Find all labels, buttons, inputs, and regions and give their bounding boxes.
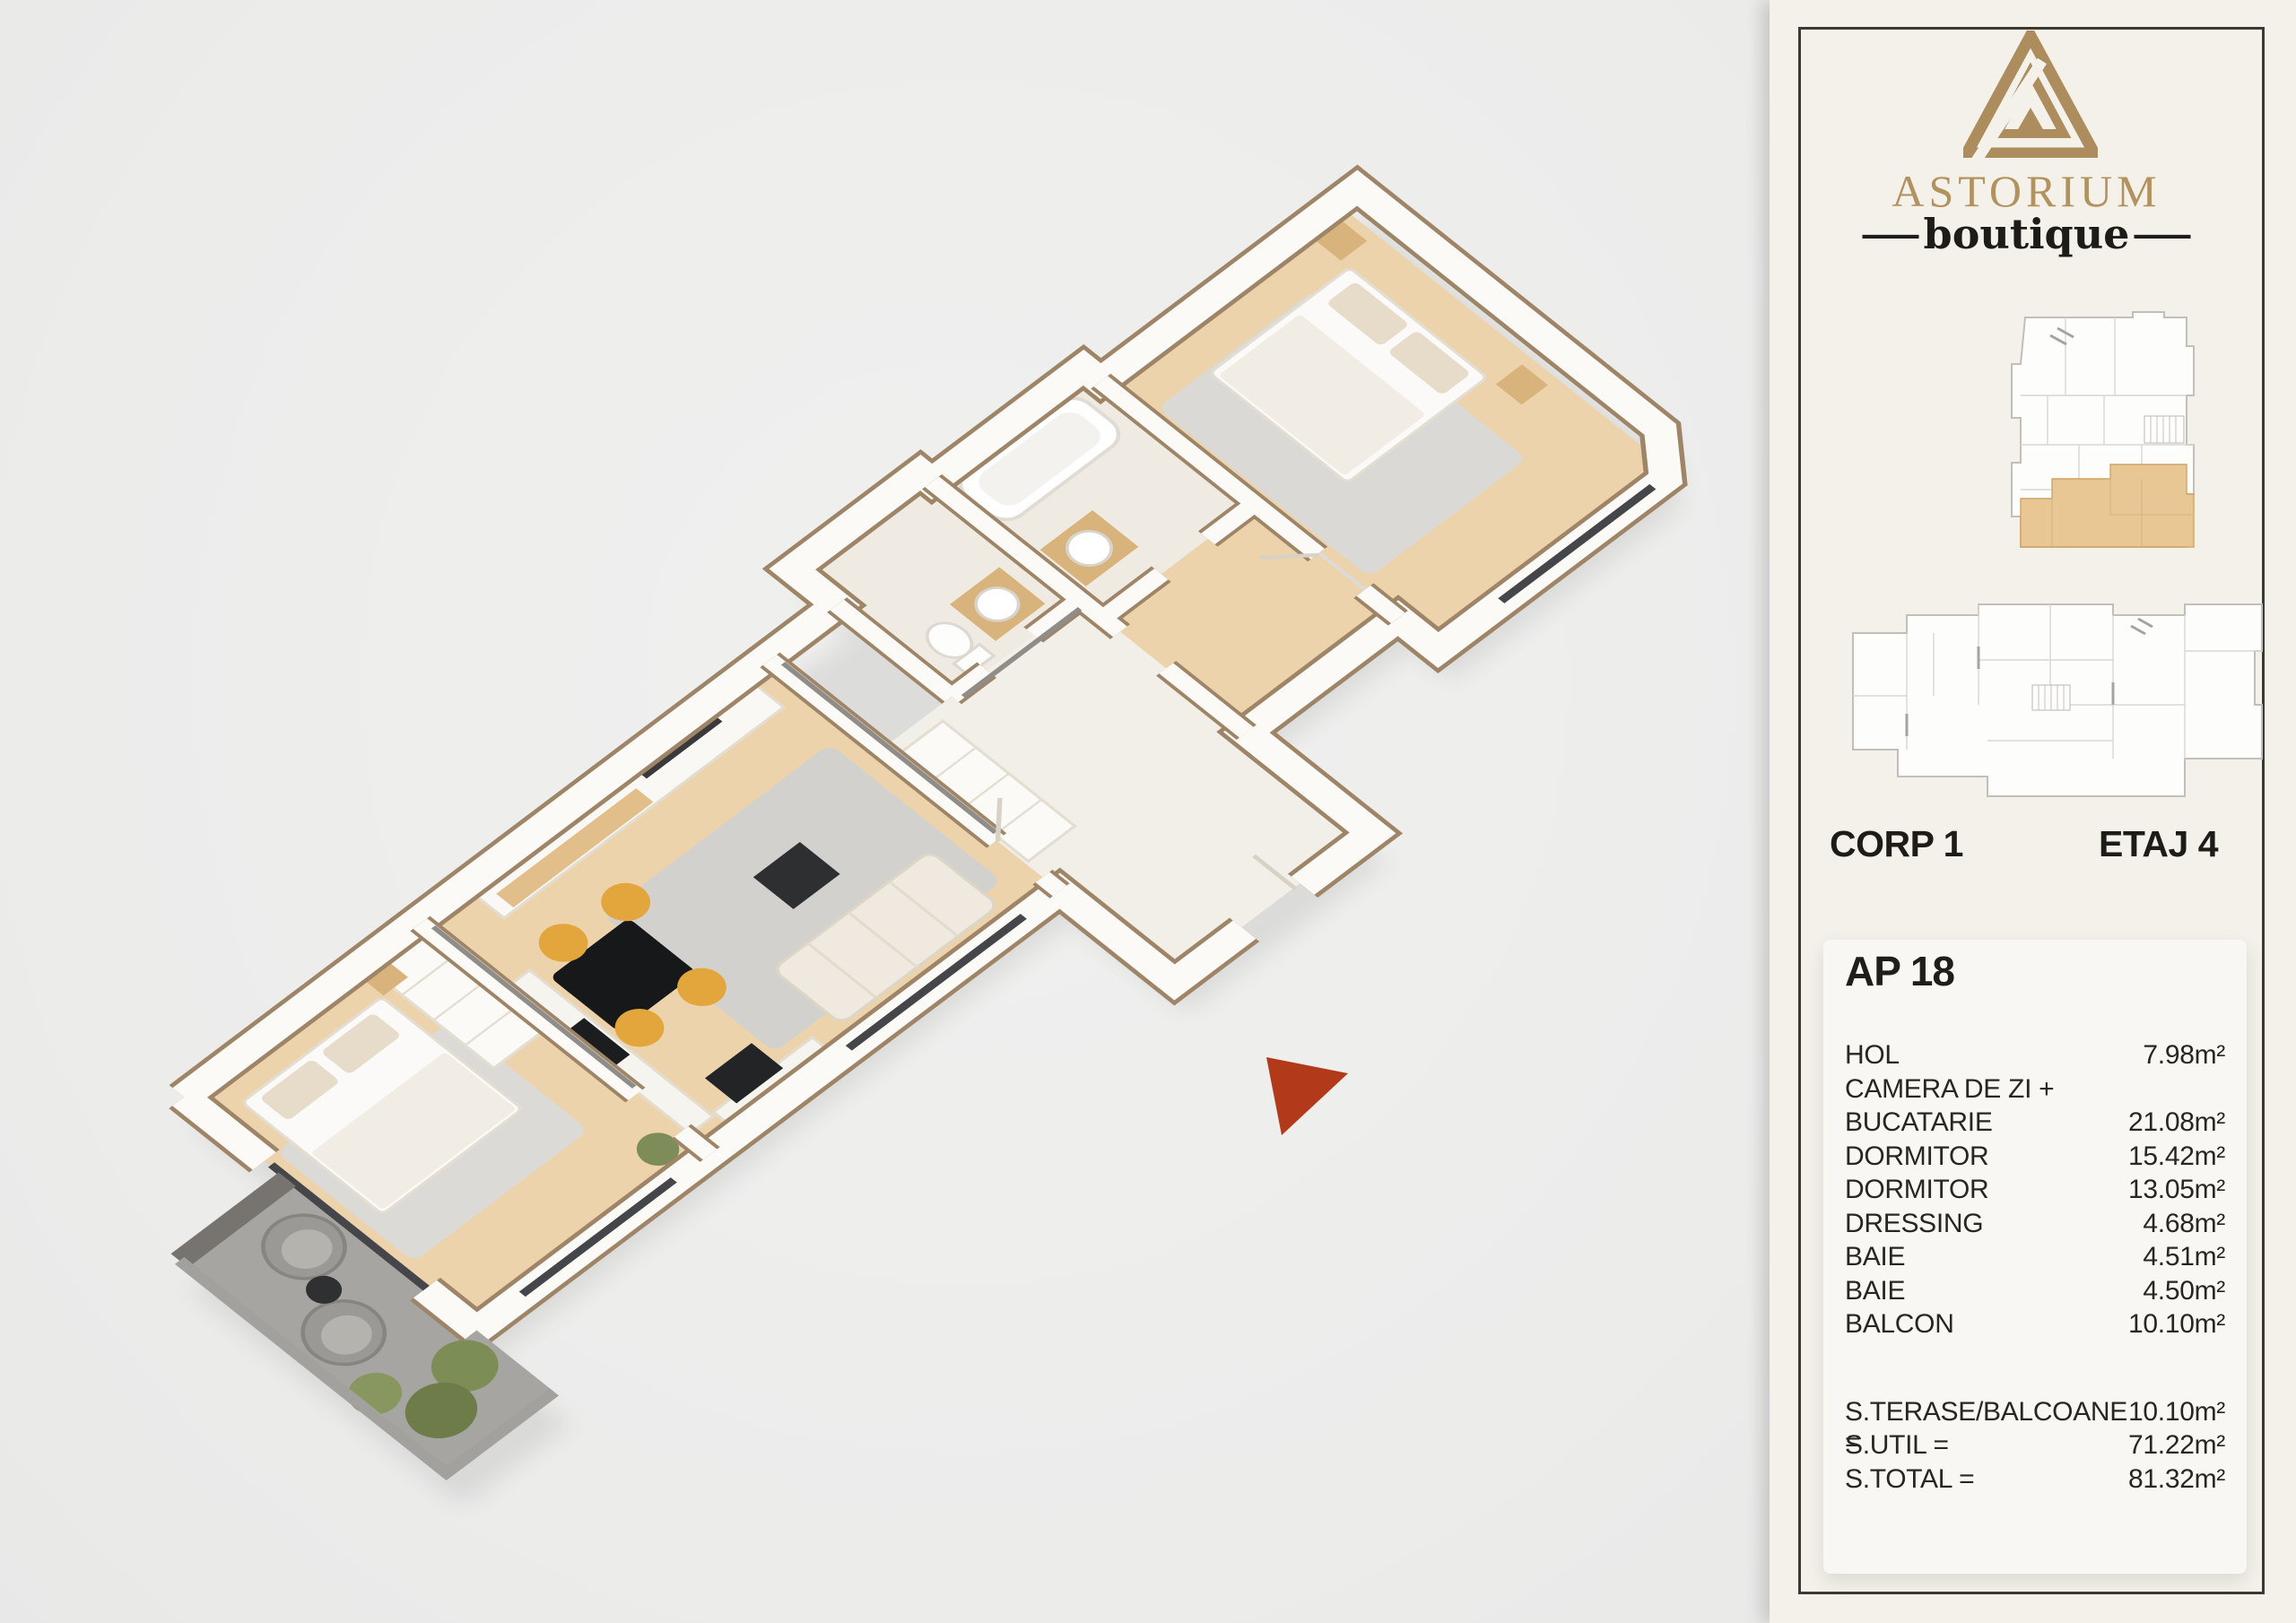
- room-label: DRESSING: [1845, 1209, 1983, 1239]
- table-row: DORMITOR 13.05m²: [1845, 1175, 2225, 1209]
- table-row: S.TOTAL = 81.32m²: [1845, 1464, 2225, 1498]
- tagline-word: boutique: [1924, 213, 2130, 255]
- floorplan-render: [0, 0, 1785, 1623]
- table-row: BAIE 4.50m²: [1845, 1276, 2225, 1310]
- room-label: BAIE: [1845, 1242, 1905, 1272]
- room-label: CAMERA DE ZI +: [1845, 1074, 2054, 1105]
- floorplan-area: [0, 0, 1785, 1623]
- table-row: BAIE 4.51m²: [1845, 1242, 2225, 1276]
- room-area: 4.68m²: [2143, 1209, 2225, 1239]
- room-area: 10.10m²: [2128, 1309, 2225, 1340]
- stairs: [2144, 416, 2184, 443]
- table-row: S.TERASE/BALCOANE = 10.10m²: [1845, 1397, 2225, 1431]
- info-sidebar: ASTORIUM — boutique —: [1770, 0, 2296, 1623]
- corp-label: CORP 1: [1830, 823, 1963, 865]
- total-area: 71.22m²: [2128, 1430, 2225, 1461]
- building-locator-plan: [1844, 597, 2271, 805]
- apartment-title: AP 18: [1845, 947, 1954, 995]
- room-area: 15.42m²: [2128, 1141, 2225, 1172]
- apartment-card: AP 18 HOL 7.98m² CAMERA DE ZI + BUCATARI…: [1823, 940, 2247, 1574]
- totals-section: S.TERASE/BALCOANE = 10.10m² S.UTIL = 71.…: [1845, 1397, 2225, 1498]
- room-area: 13.05m²: [2128, 1175, 2225, 1205]
- table-row: HOL 7.98m²: [1845, 1040, 2225, 1074]
- floor-labels: CORP 1 ETAJ 4: [1830, 823, 2218, 865]
- room-area: 21.08m²: [2128, 1107, 2225, 1138]
- room-label: HOL: [1845, 1040, 1900, 1071]
- total-area: 10.10m²: [2128, 1397, 2225, 1428]
- room-label: BAIE: [1845, 1276, 1905, 1306]
- total-label: S.UTIL =: [1845, 1430, 1949, 1461]
- room-label: BALCON: [1845, 1309, 1954, 1340]
- room-label: DORMITOR: [1845, 1175, 1988, 1205]
- table-row: DRESSING 4.68m²: [1845, 1209, 2225, 1243]
- screenshot-root: ASTORIUM — boutique —: [0, 0, 2296, 1623]
- room-area: 4.50m²: [2143, 1276, 2225, 1306]
- room-label: DORMITOR: [1845, 1141, 1988, 1172]
- table-row: BUCATARIE 21.08m²: [1845, 1107, 2225, 1141]
- etaj-label: ETAJ 4: [2099, 823, 2218, 865]
- area-table: HOL 7.98m² CAMERA DE ZI + BUCATARIE 21.0…: [1845, 1040, 2225, 1497]
- astorium-logo-icon: [1963, 30, 2098, 158]
- room-area: 4.51m²: [2143, 1242, 2225, 1272]
- table-row: BALCON 10.10m²: [1845, 1309, 2225, 1343]
- floor-locator-plan: [1998, 310, 2211, 572]
- table-row: DORMITOR 15.42m²: [1845, 1141, 2225, 1176]
- total-area: 81.32m²: [2128, 1464, 2225, 1495]
- room-area: 7.98m²: [2143, 1040, 2225, 1071]
- room-label: BUCATARIE: [1845, 1107, 1993, 1138]
- stairs: [2032, 685, 2070, 710]
- total-label: S.TOTAL =: [1845, 1464, 1974, 1495]
- tagline-dash: —: [1862, 215, 1918, 253]
- table-row: CAMERA DE ZI +: [1845, 1074, 2225, 1108]
- entrance-arrow: [1266, 1057, 1348, 1135]
- brand-tagline: — boutique —: [1770, 213, 2283, 255]
- tagline-dash: —: [2135, 215, 2191, 253]
